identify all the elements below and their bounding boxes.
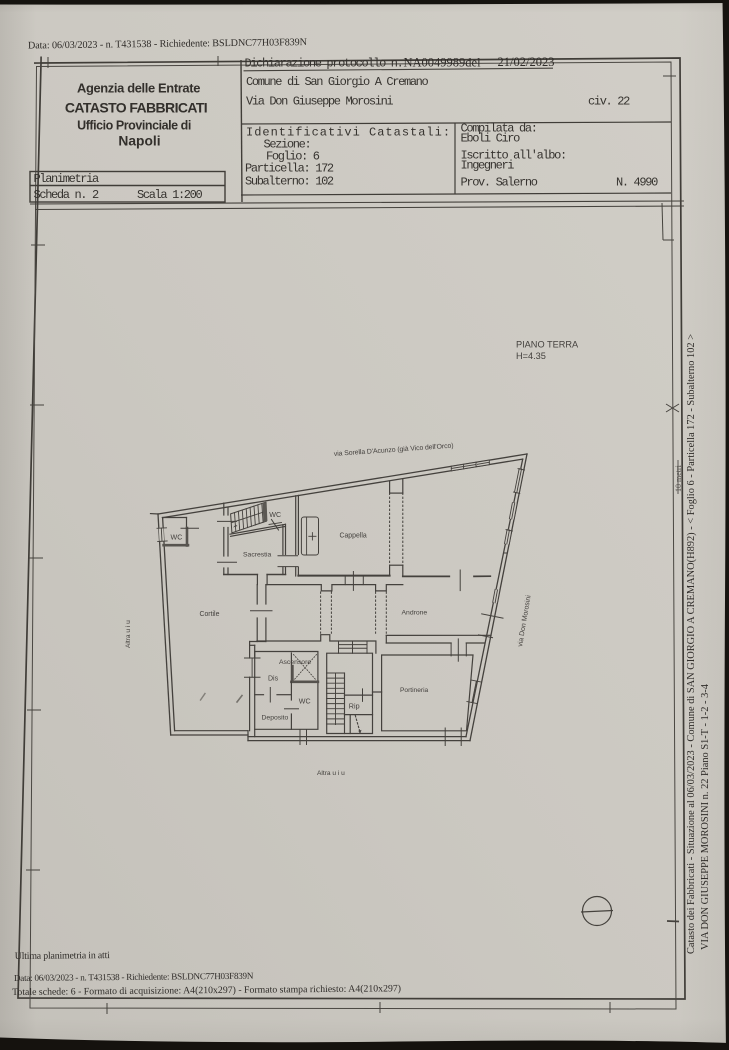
svg-text:Cappella: Cappella	[340, 533, 367, 540]
svg-text:Altra u i u: Altra u i u	[317, 770, 345, 777]
svg-text:Subalterno: 102: Subalterno: 102	[245, 175, 334, 189]
svg-text:N. 4990: N. 4990	[616, 176, 658, 190]
svg-text:Scheda n. 2: Scheda n. 2	[34, 188, 100, 202]
svg-text:Planimetria: Planimetria	[34, 172, 100, 186]
svg-text:Androne: Androne	[402, 609, 428, 616]
svg-text:Napoli: Napoli	[118, 134, 160, 149]
svg-text:CATASTO FABBRICATI: CATASTO FABBRICATI	[65, 100, 207, 116]
svg-text:Sacrestia: Sacrestia	[243, 552, 272, 559]
svg-text:Dis: Dis	[268, 676, 279, 683]
svg-text:Catasto dei Fabbricati - Situa: Catasto dei Fabbricati - Situazione al 0…	[686, 334, 697, 954]
svg-text:Ascensore: Ascensore	[279, 659, 311, 666]
svg-text:WC: WC	[269, 511, 281, 519]
svg-text:Eboli Ciro: Eboli Ciro	[461, 132, 521, 146]
svg-text:civ. 22: civ. 22	[588, 95, 630, 109]
svg-text:21/02/2023: 21/02/2023	[498, 55, 555, 69]
svg-text:Altra u i u: Altra u i u	[125, 620, 132, 648]
svg-text:Scala 1:200: Scala 1:200	[137, 188, 203, 202]
svg-text:Ingegneri: Ingegneri	[461, 159, 515, 173]
svg-text:Dichiarazione protocollo n.: Dichiarazione protocollo n.	[245, 57, 403, 71]
svg-text:WC: WC	[299, 698, 311, 706]
svg-text:Deposito: Deposito	[262, 714, 289, 721]
svg-text:H=4.35: H=4.35	[516, 351, 546, 361]
svg-text:Comune di San Giorgio A Creman: Comune di San Giorgio A Cremano	[246, 75, 429, 89]
svg-text:Ultima planimetria in atti: Ultima planimetria in atti	[15, 950, 110, 962]
svg-text:NA0049989del: NA0049989del	[404, 56, 482, 70]
svg-text:PIANO TERRA: PIANO TERRA	[516, 340, 579, 350]
svg-text:Prov. Salerno: Prov. Salerno	[461, 176, 538, 190]
svg-text:Ufficio Provinciale di: Ufficio Provinciale di	[77, 119, 191, 133]
svg-text:Particella: 172: Particella: 172	[245, 162, 334, 176]
svg-text:Rip: Rip	[349, 702, 360, 711]
svg-text:WC: WC	[171, 534, 183, 542]
svg-text:Portineria: Portineria	[400, 687, 429, 694]
svg-text:Agenzia delle Entrate: Agenzia delle Entrate	[77, 81, 200, 96]
svg-text:Via Don Giuseppe Morosini: Via Don Giuseppe Morosini	[246, 95, 393, 109]
svg-text:VIA DON GIUSEPPE MOROSINI n. 2: VIA DON GIUSEPPE MOROSINI n. 22 Piano S1…	[700, 683, 711, 950]
svg-text:Cortile: Cortile	[200, 611, 220, 618]
